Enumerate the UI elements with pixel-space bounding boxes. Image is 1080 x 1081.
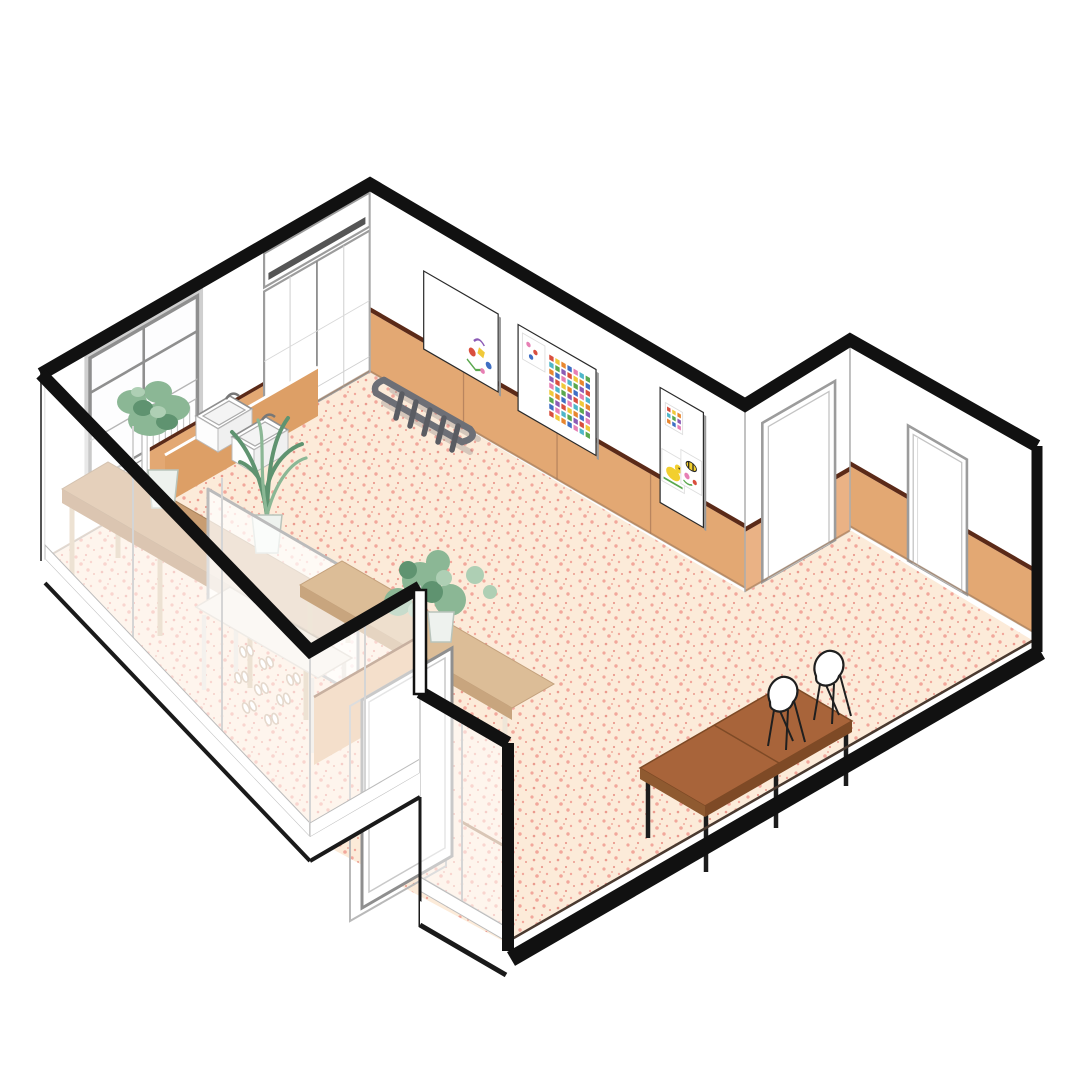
floorplan-canvas xyxy=(0,0,1080,1081)
cut-step-edge xyxy=(414,590,426,694)
plant-pot xyxy=(428,612,454,642)
isometric-floorplan-illustration xyxy=(0,0,1080,1081)
